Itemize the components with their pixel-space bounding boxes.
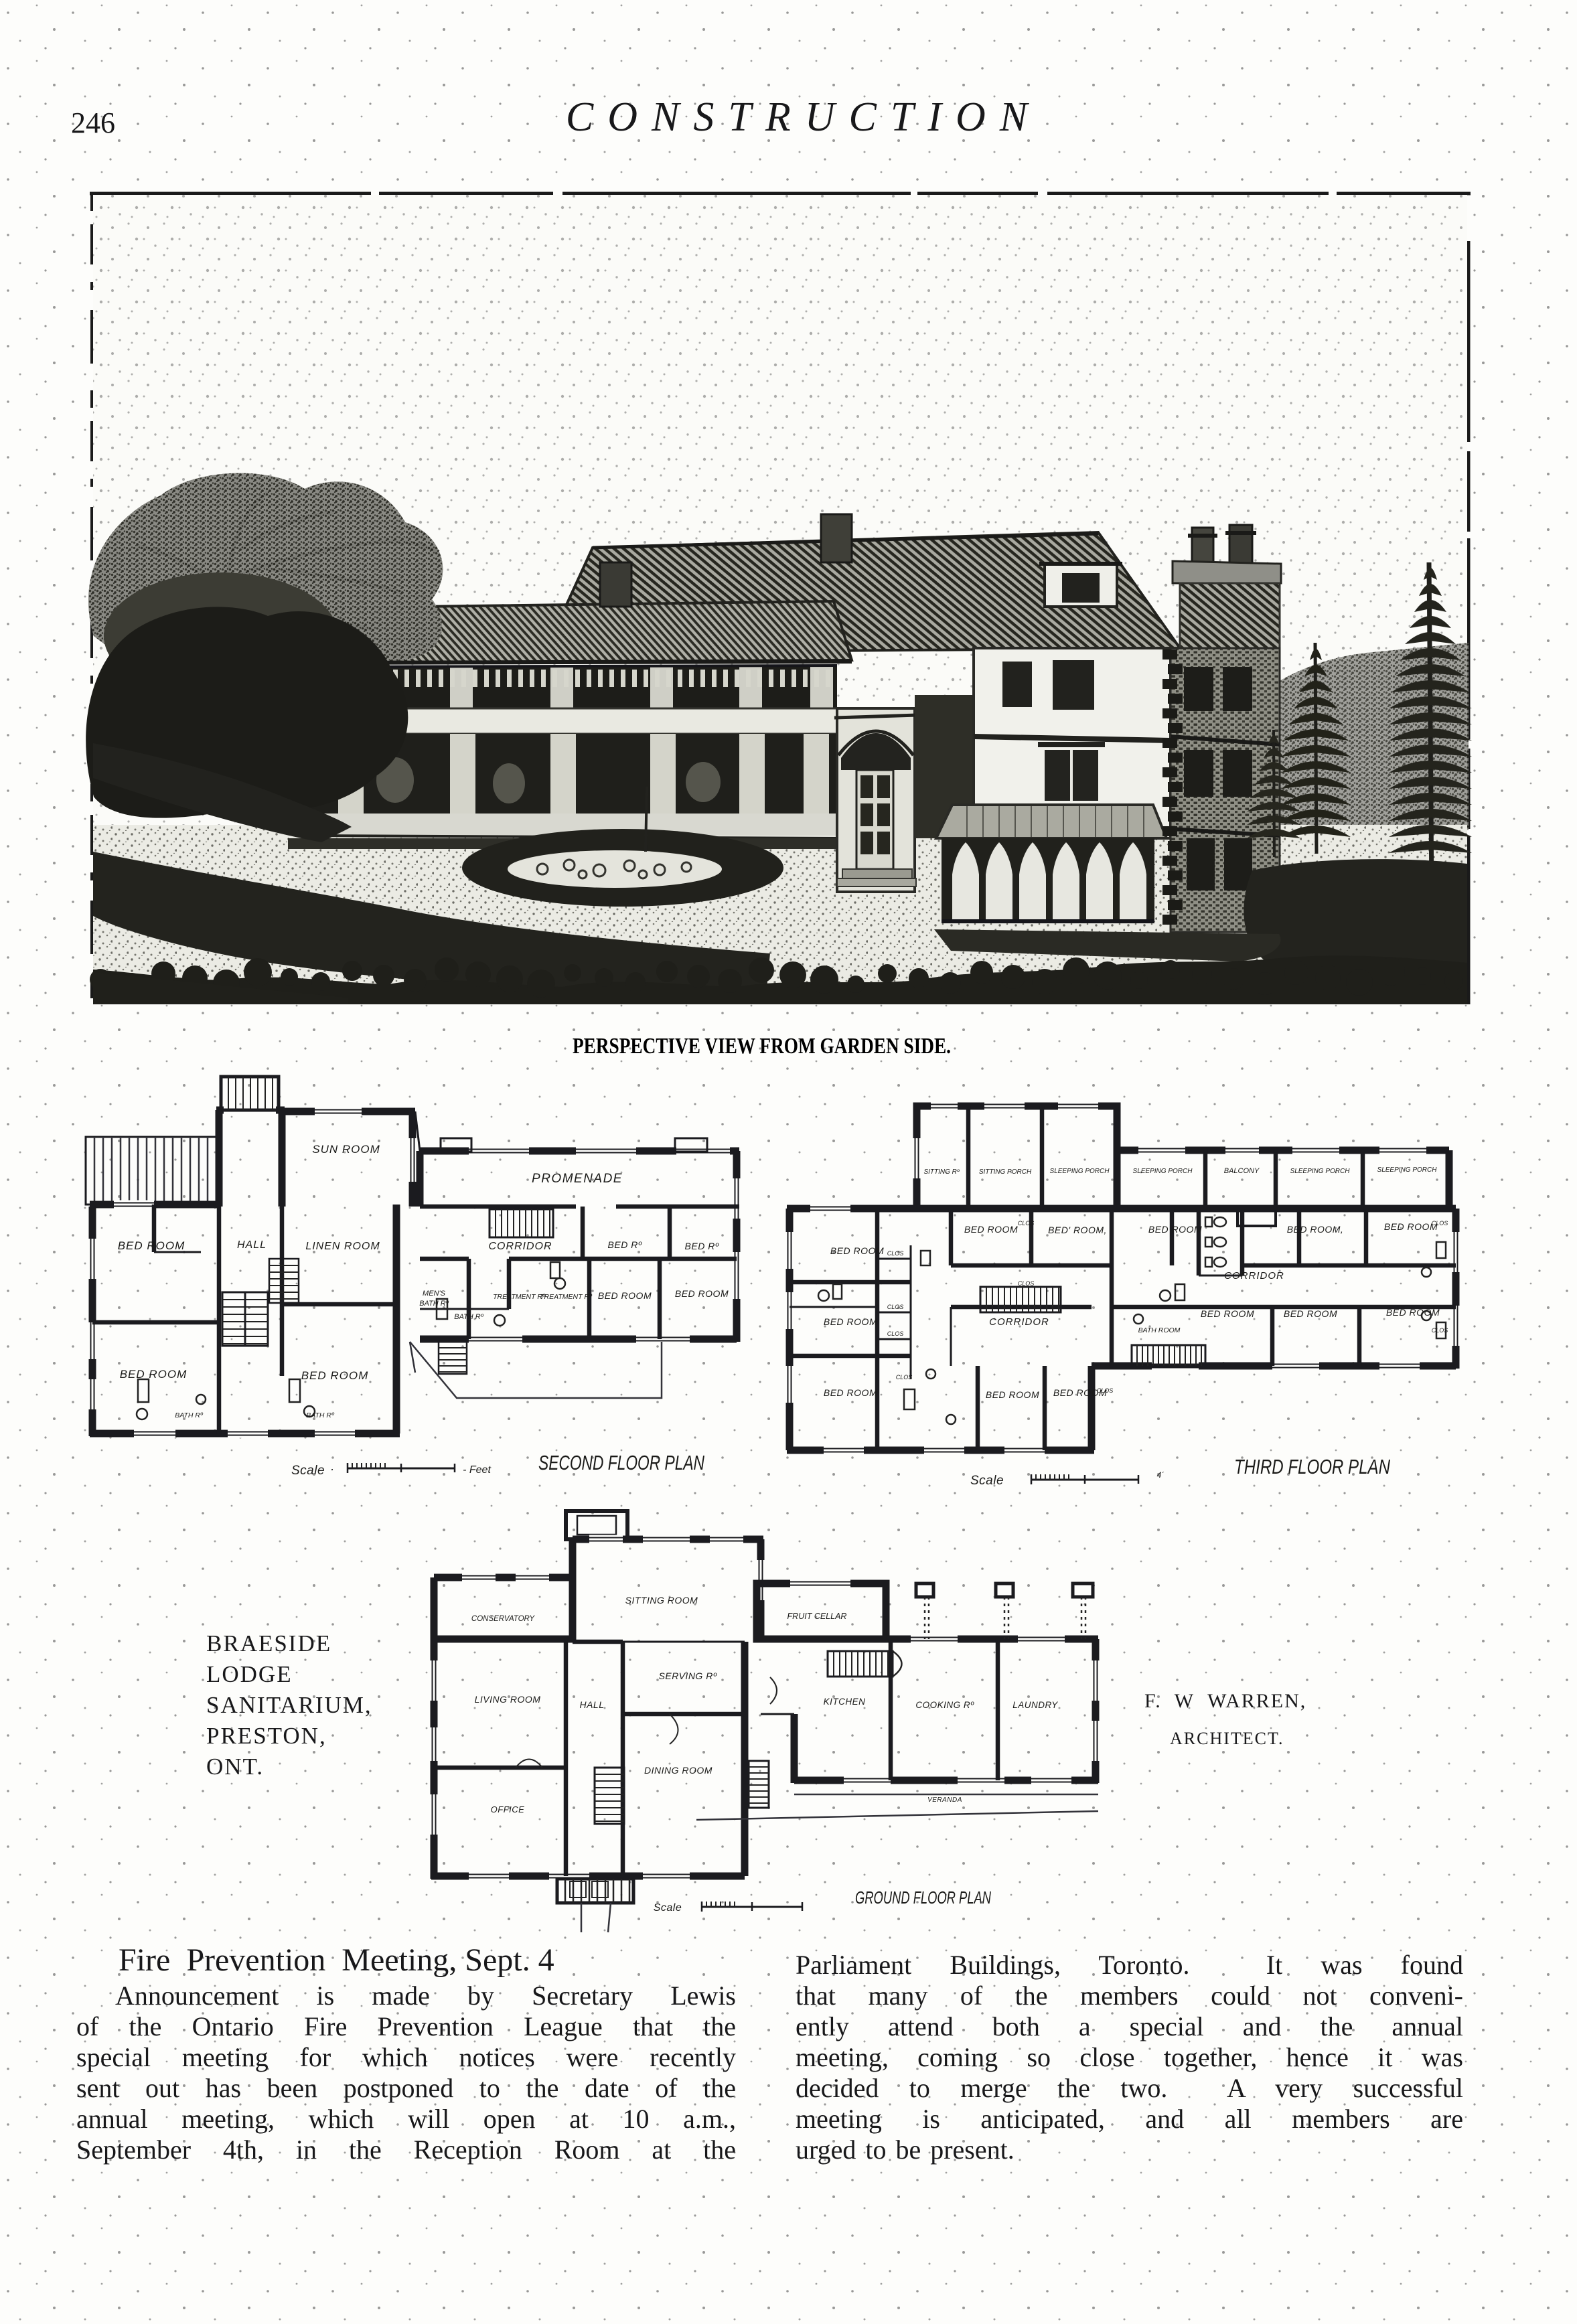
svg-text:Scale: Scale bbox=[970, 1474, 1004, 1488]
svg-text:BED Rº: BED Rº bbox=[608, 1239, 642, 1250]
svg-text:BATH Rº: BATH Rº bbox=[306, 1411, 335, 1419]
svg-text:COOKING Rº: COOKING Rº bbox=[915, 1700, 974, 1710]
svg-text:BED ROOM: BED ROOM bbox=[118, 1239, 185, 1252]
svg-text:SERVING Rº: SERVING Rº bbox=[659, 1671, 717, 1681]
svg-text:KITCHEN: KITCHEN bbox=[824, 1697, 866, 1707]
svg-text:BALCONY: BALCONY bbox=[1224, 1167, 1260, 1175]
svg-text:SUN ROOM: SUN ROOM bbox=[312, 1143, 380, 1156]
svg-text:BED ROOM: BED ROOM bbox=[1384, 1221, 1438, 1232]
svg-text:BED ROOM: BED ROOM bbox=[986, 1389, 1039, 1400]
svg-text:BED ROOM: BED ROOM bbox=[1148, 1224, 1202, 1235]
svg-text:PROMENADE: PROMENADE bbox=[532, 1172, 623, 1186]
svg-text:HALL: HALL bbox=[579, 1699, 604, 1710]
svg-text:CORRIDOR: CORRIDOR bbox=[488, 1241, 552, 1252]
svg-text:LINEN ROOM: LINEN ROOM bbox=[305, 1241, 380, 1252]
svg-text:Scale: Scale bbox=[654, 1902, 682, 1914]
svg-text:SECOND FLOOR PLAN: SECOND FLOOR PLAN bbox=[538, 1451, 704, 1474]
svg-text:HALL: HALL bbox=[237, 1239, 267, 1251]
svg-text:BED ROOM: BED ROOM bbox=[675, 1288, 729, 1299]
svg-text:BED ROOM: BED ROOM bbox=[824, 1316, 877, 1327]
svg-text:BED ROOM: BED ROOM bbox=[598, 1290, 652, 1301]
svg-text:CLOS: CLOS bbox=[1432, 1220, 1448, 1227]
svg-text:BED ROOM: BED ROOM bbox=[964, 1224, 1018, 1235]
svg-text:BED' ROOM,: BED' ROOM, bbox=[1048, 1225, 1107, 1235]
svg-text:BATH Rº: BATH Rº bbox=[419, 1300, 449, 1308]
svg-text:Scale: Scale bbox=[291, 1464, 325, 1478]
svg-text:BED ROOM: BED ROOM bbox=[1201, 1308, 1254, 1319]
svg-text:CORRIDOR: CORRIDOR bbox=[989, 1316, 1049, 1328]
svg-text:BATH Rº: BATH Rº bbox=[454, 1313, 484, 1321]
svg-text:BED ROOM: BED ROOM bbox=[120, 1368, 187, 1381]
svg-text:TREATMENT Rº: TREATMENT Rº bbox=[540, 1293, 593, 1301]
svg-text:BED ROOM: BED ROOM bbox=[824, 1387, 877, 1398]
svg-text:LIVING ROOM: LIVING ROOM bbox=[475, 1694, 541, 1705]
svg-text:CLOS: CLOS bbox=[1097, 1387, 1114, 1394]
svg-text:VERANDA: VERANDA bbox=[927, 1796, 962, 1804]
svg-text:4´: 4´ bbox=[1157, 1470, 1165, 1480]
svg-text:- Feet: - Feet bbox=[463, 1464, 491, 1476]
svg-text:SITTING ROOM: SITTING ROOM bbox=[625, 1595, 698, 1606]
svg-text:BED ROOM: BED ROOM bbox=[1386, 1307, 1440, 1318]
svg-text:GROUND FLOOR PLAN: GROUND FLOOR PLAN bbox=[855, 1887, 991, 1908]
svg-text:CLOS: CLOS bbox=[1018, 1280, 1035, 1287]
svg-text:SLEEPING PORCH: SLEEPING PORCH bbox=[1377, 1166, 1438, 1174]
svg-text:BED ROOM: BED ROOM bbox=[830, 1245, 884, 1256]
svg-text:FRUIT CELLAR: FRUIT CELLAR bbox=[787, 1612, 847, 1621]
svg-text:CLOS: CLOS bbox=[1432, 1327, 1448, 1334]
svg-text:CONSERVATORY: CONSERVATORY bbox=[471, 1615, 535, 1623]
svg-text:BATH Rº: BATH Rº bbox=[175, 1411, 204, 1419]
svg-text:BED Rº: BED Rº bbox=[685, 1241, 719, 1251]
svg-text:SITTING PORCH: SITTING PORCH bbox=[979, 1168, 1032, 1176]
svg-text:DINING ROOM: DINING ROOM bbox=[644, 1765, 712, 1776]
svg-text:THIRD FLOOR PLAN: THIRD FLOOR PLAN bbox=[1234, 1455, 1390, 1478]
svg-text:CLOS: CLOS bbox=[887, 1250, 904, 1257]
svg-text:OFFICE: OFFICE bbox=[491, 1804, 525, 1814]
svg-text:CLOS: CLOS bbox=[1018, 1220, 1035, 1227]
svg-text:·: · bbox=[330, 1462, 334, 1476]
svg-text:BED ROOM: BED ROOM bbox=[1284, 1308, 1337, 1319]
svg-text:TREATMENT Rº: TREATMENT Rº bbox=[493, 1293, 546, 1301]
svg-text:MEN'S: MEN'S bbox=[423, 1290, 446, 1298]
svg-text:CLOS: CLOS bbox=[887, 1330, 904, 1337]
svg-text:SLEEPING PORCH: SLEEPING PORCH bbox=[1133, 1168, 1193, 1175]
svg-text:SLEEPING PORCH: SLEEPING PORCH bbox=[1290, 1168, 1351, 1175]
svg-text:SITTING Rº: SITTING Rº bbox=[923, 1168, 960, 1176]
svg-text:CLOS: CLOS bbox=[896, 1374, 913, 1381]
svg-text:BED ROOM: BED ROOM bbox=[301, 1369, 369, 1382]
svg-text:LAUNDRY: LAUNDRY bbox=[1012, 1700, 1058, 1710]
svg-text:BATH ROOM: BATH ROOM bbox=[1138, 1326, 1181, 1334]
svg-text:BED ROOM,: BED ROOM, bbox=[1287, 1224, 1344, 1235]
svg-text:CLOS: CLOS bbox=[887, 1304, 904, 1310]
svg-text:SLEEPING PORCH: SLEEPING PORCH bbox=[1050, 1168, 1110, 1175]
svg-text:CORRIDOR: CORRIDOR bbox=[1224, 1270, 1284, 1282]
